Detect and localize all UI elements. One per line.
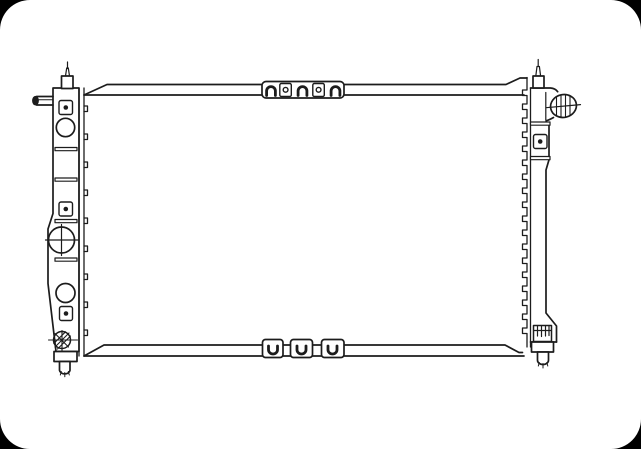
crimp-tab-edge-right <box>523 78 528 348</box>
hole-dot <box>538 139 543 144</box>
corner-mask-bottom-left <box>0 419 30 449</box>
clip-grid <box>534 326 552 342</box>
product-photo <box>0 0 641 449</box>
hole-dot <box>64 311 69 316</box>
right-filler-stem <box>533 60 544 89</box>
crimp-tab-edge-left <box>79 88 88 356</box>
left-tank <box>37 62 88 377</box>
right-tank <box>523 60 581 369</box>
corner-mask-top-left <box>0 0 30 30</box>
right-bottom-stub <box>532 342 554 368</box>
inlet-pipe-cap <box>32 96 39 106</box>
corner-masks <box>0 0 641 449</box>
left-inlet-pipe <box>37 97 54 106</box>
right-outlet-pipe <box>546 92 581 120</box>
filler-neck <box>62 62 74 89</box>
corner-mask-top-right <box>611 0 641 30</box>
radiator-drawing-svg <box>0 0 641 449</box>
bottom-mount-tabs <box>263 340 345 358</box>
left-bottom-stub <box>54 352 77 377</box>
corner-mask-bottom-right <box>611 419 641 449</box>
radiator-line-drawing <box>37 60 581 377</box>
ink-filled-details <box>32 96 542 316</box>
right-tank-outline <box>531 88 558 342</box>
hole-dot <box>64 105 69 110</box>
top-mount-bracket <box>262 82 344 99</box>
hole-dot <box>64 207 69 212</box>
